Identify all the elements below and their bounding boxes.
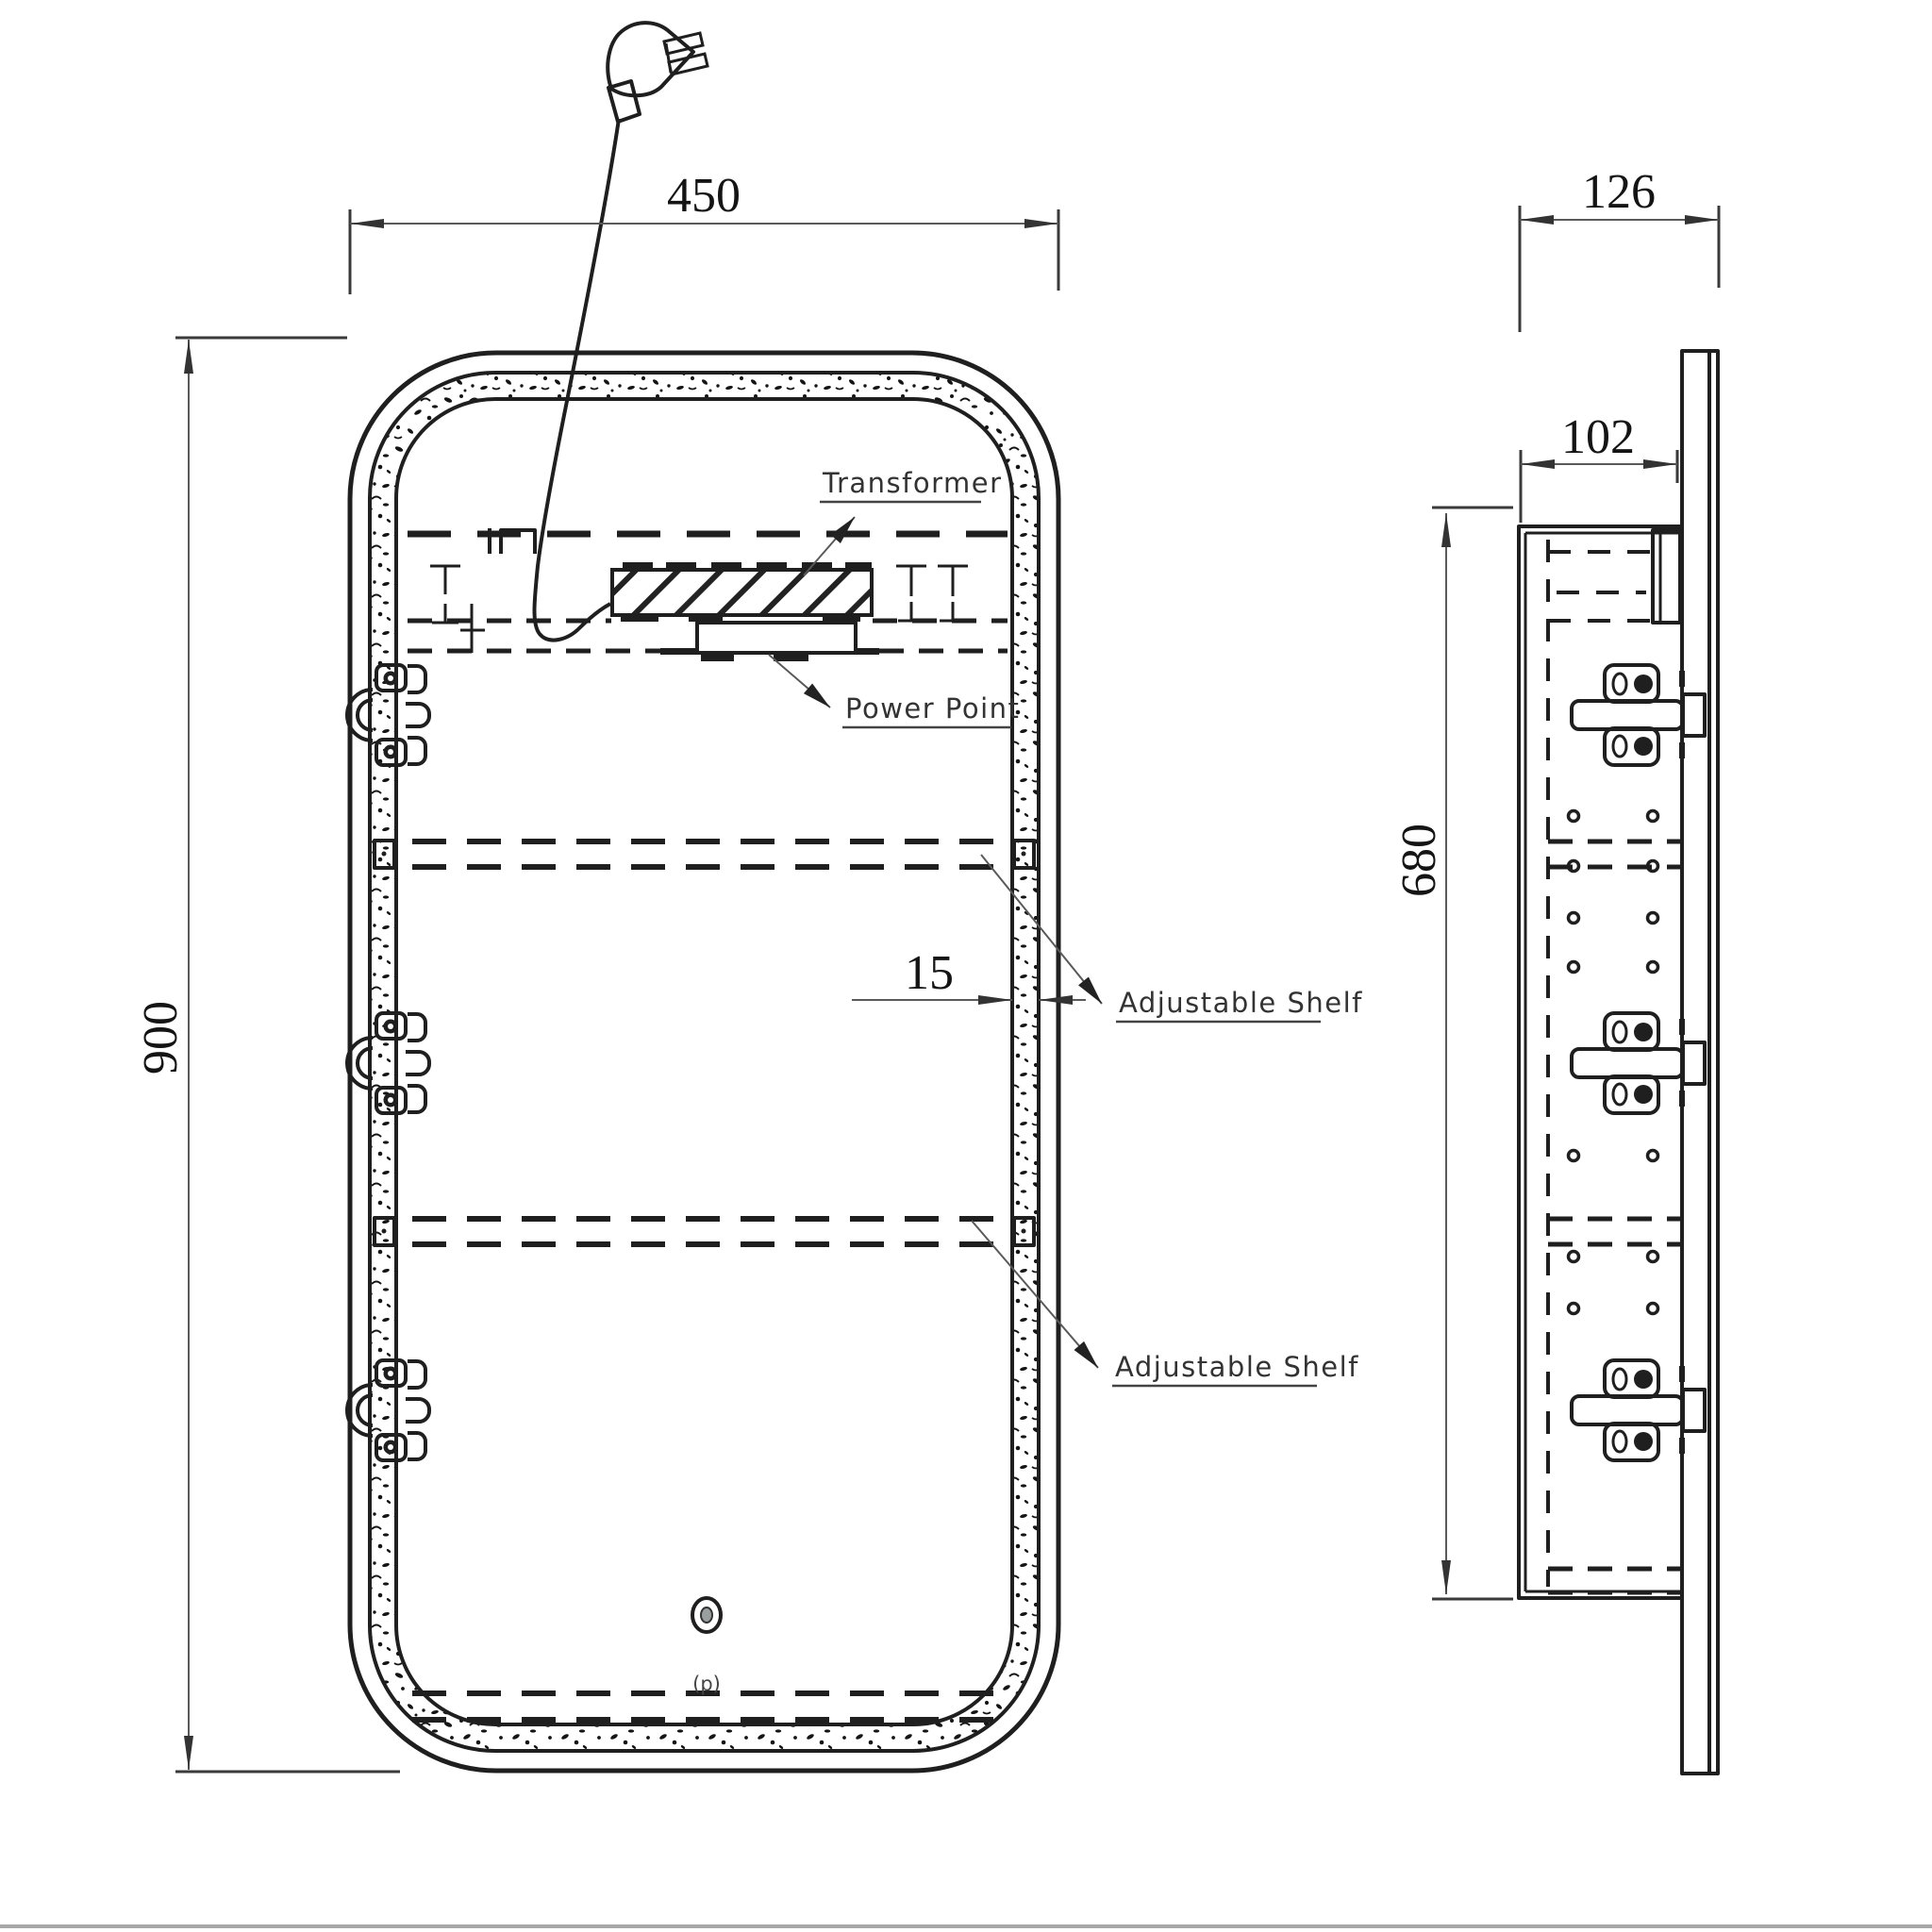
transformer-label-text: Transformer [822,467,1003,499]
front-view: (p) [347,23,1058,1771]
dimension-height-680: 680 [1392,508,1513,1599]
back-panel [1682,351,1718,1774]
dimension-width-450: 450 [350,169,1058,294]
side-top-interior [1548,530,1680,623]
dim-text-15: 15 [905,946,954,1000]
wall-bracket-icon-top [1572,665,1705,765]
technical-drawing-page: (p) [0,0,1932,1932]
dim-text-450: 450 [667,169,741,223]
side-shelf-dashes [1548,841,1680,1592]
dimension-depth-126: 126 [1520,165,1719,332]
touch-sensor-glyph: (p) [692,1673,721,1695]
transformer-hatched-block [612,562,872,622]
wall-bracket-icon-bottom [1572,1360,1705,1460]
dimension-depth-102: 102 [1521,410,1677,523]
side-view [1519,351,1718,1774]
dim-text-126: 126 [1582,165,1656,219]
dim-text-900: 900 [134,1001,188,1074]
shelf-pin-holes [1569,811,1658,1314]
dim-text-680: 680 [1392,824,1446,897]
adjustable-shelf-bottom-label-text: Adjustable Shelf [1115,1351,1359,1383]
adjustable-shelf-top-label-text: Adjustable Shelf [1119,987,1363,1019]
cabinet-drawing-svg: (p) [0,0,1932,1932]
wall-bracket-icon-middle [1572,1013,1705,1113]
power-point-label-text: Power Point [845,692,1020,724]
dim-text-102: 102 [1561,410,1635,464]
power-plug-icon [608,23,708,122]
